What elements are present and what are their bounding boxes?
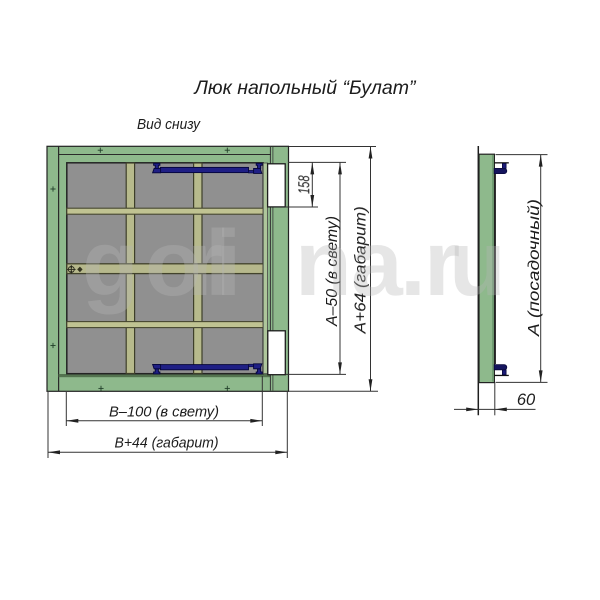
svg-text:А (посадочный): А (посадочный) — [526, 199, 543, 337]
svg-text:Вид снизу: Вид снизу — [137, 116, 201, 133]
svg-text:Люк напольный “Булат”: Люк напольный “Булат” — [192, 77, 417, 99]
svg-text:В–100 (в свету): В–100 (в свету) — [109, 404, 219, 421]
svg-text:158: 158 — [297, 175, 314, 194]
svg-text:60: 60 — [517, 391, 536, 409]
svg-text:gorlina.ru: gorlina.ru — [82, 211, 506, 315]
svg-text:В+44 (габарит): В+44 (габарит) — [115, 435, 219, 452]
